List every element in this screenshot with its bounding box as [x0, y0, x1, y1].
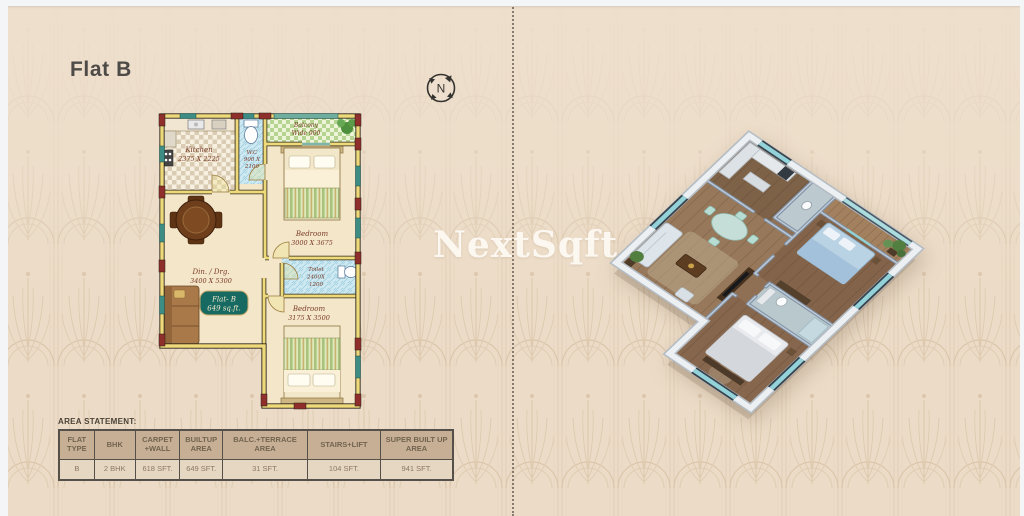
wc-dim1: 900 X	[244, 157, 261, 163]
cell-super-builtup: 941 SFT.	[381, 460, 453, 481]
column-header: CARPET +WALL	[135, 430, 179, 460]
column-header: BUILTUP AREA	[180, 430, 223, 460]
bedroom1-dim: 3000 X 3675	[291, 239, 333, 247]
balcony-dim: Wide 900	[292, 130, 321, 137]
bedroom1-label: Bedroom	[295, 230, 329, 238]
bedroom2-label: Bedroom	[292, 305, 326, 313]
toilet-dim1: 2400X	[306, 275, 326, 281]
cell-bhk: 2 BHK	[94, 460, 135, 481]
toilet-label: Toilet	[308, 267, 324, 273]
cell-balc-terrace: 31 SFT.	[223, 460, 307, 481]
page-frame-left	[0, 0, 8, 516]
wc-dim2: 2100	[244, 164, 259, 170]
flat-area-badge: Flat- B 649 sq.ft.	[200, 291, 248, 315]
cell-builtup-area: 649 SFT.	[180, 460, 223, 481]
compass-north-label: N	[437, 82, 446, 96]
wc-toilet-fixture	[244, 120, 258, 144]
cell-flat-type: B	[59, 460, 94, 481]
page-frame-top	[0, 0, 1024, 6]
page-title: Flat B	[70, 58, 132, 82]
column-header: SUPER BUILT UP AREA	[381, 430, 453, 460]
badge-flat-name: Flat- B	[211, 296, 236, 304]
kitchen-dim: 2375 X 2225	[177, 155, 220, 163]
cell-stairs-lift: 104 SFT.	[307, 460, 380, 481]
sofa	[163, 286, 199, 344]
column-header: FLAT TYPE	[59, 430, 94, 460]
wc-label: W.C	[247, 150, 258, 156]
dining-label: Din. / Drg.	[191, 268, 229, 276]
dining-dim: 3400 X 5300	[190, 277, 232, 285]
compass-icon: N	[415, 63, 467, 115]
page-frame-right	[1020, 6, 1024, 516]
center-divider-dotted-line	[512, 0, 514, 516]
column-header: BHK	[94, 430, 135, 460]
kitchen-label: Kitchen	[184, 146, 213, 154]
table-header-row: FLAT TYPE BHK CARPET +WALL BUILTUP AREA …	[59, 430, 453, 460]
column-header: BALC.+TERRACE AREA	[223, 430, 307, 460]
toilet-dim2: 1200	[309, 282, 323, 288]
column-header: STAIRS+LIFT	[307, 430, 380, 460]
bedroom1-bed	[281, 146, 343, 220]
table-row: B 2 BHK 618 SFT. 649 SFT. 31 SFT. 104 SF…	[59, 460, 453, 481]
bedroom2-bed	[281, 326, 343, 404]
badge-flat-area: 649 sq.ft.	[207, 305, 241, 313]
floor-plan-2d: Flat- B 649 sq.ft. Kitchen 2375 X 2225 W…	[154, 108, 366, 414]
balcony-label: Balcony	[293, 122, 319, 129]
area-statement-table-wrap: FLAT TYPE BHK CARPET +WALL BUILTUP AREA …	[58, 429, 454, 481]
cell-carpet-wall: 618 SFT.	[135, 460, 179, 481]
area-statement-table: FLAT TYPE BHK CARPET +WALL BUILTUP AREA …	[58, 429, 454, 481]
bedroom2-dim: 3175 X 3500	[288, 314, 330, 322]
toilet-fixture	[338, 266, 358, 278]
area-statement-label: AREA STATEMENT:	[58, 417, 137, 426]
watermark: NextSqft	[433, 224, 618, 266]
